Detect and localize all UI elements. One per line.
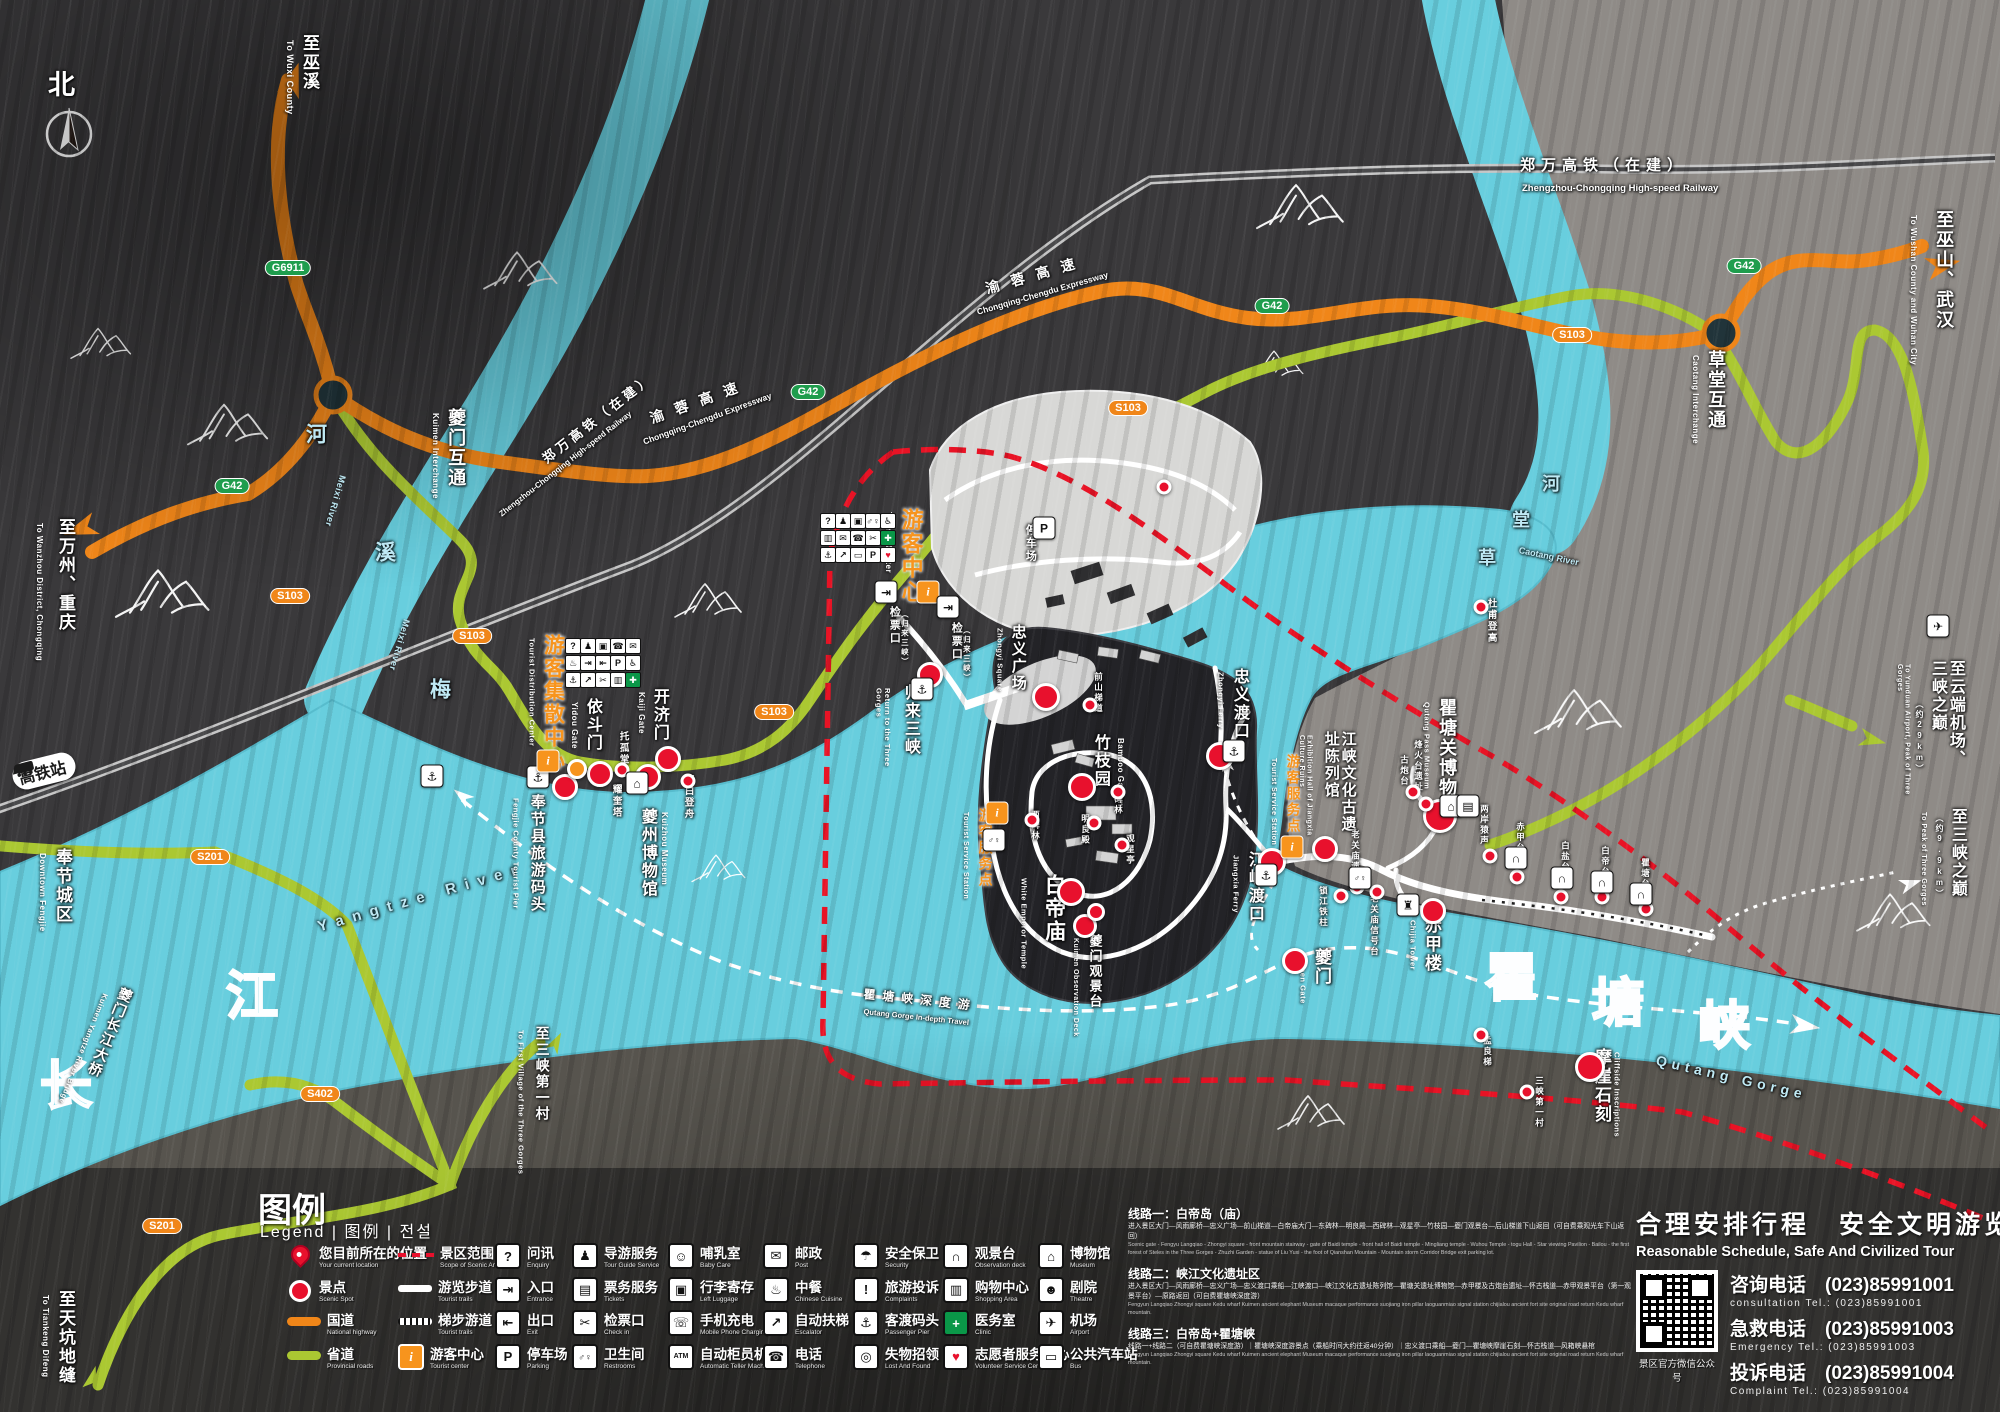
service-icon: ♟ bbox=[580, 638, 596, 654]
scenic-spot bbox=[1474, 1028, 1489, 1043]
service-icon: ▭ bbox=[850, 547, 866, 563]
scenic-spot bbox=[1032, 683, 1060, 711]
zhongyi-ferry-en: Zhongyi Ferry bbox=[1216, 672, 1224, 729]
legend-icon-box: ? bbox=[495, 1243, 521, 1269]
legend-icon-box: ♟ bbox=[572, 1243, 598, 1269]
service-icon: ✚ bbox=[880, 530, 896, 546]
legend-label-en: Provincial roads bbox=[327, 1363, 373, 1370]
legend-label: 客渡码头 bbox=[885, 1309, 939, 1329]
scenic-spot bbox=[1483, 849, 1498, 864]
road-shield-s201: S201 bbox=[190, 849, 230, 865]
ticket-gate-2-sub: （归来三峡） bbox=[962, 626, 970, 683]
legend-label: 邮政 bbox=[795, 1242, 822, 1262]
service-icon: ☎ bbox=[850, 530, 866, 546]
scenic-spot bbox=[1057, 878, 1085, 906]
legend-icon-atm: ATM bbox=[668, 1344, 694, 1370]
yidou-gate-en: Yidou Gate bbox=[569, 702, 578, 749]
road-shield-g42: G42 bbox=[791, 384, 826, 400]
road-shield-s103: S103 bbox=[754, 704, 794, 720]
road-shield-s103: S103 bbox=[452, 628, 492, 644]
dest-first-village-en: To First Village of the Three Gorges bbox=[516, 1030, 524, 1180]
service-icon-grid: ?♟▣☎✉♨⇥⇤P♿⚓↗✂▥✚ bbox=[565, 638, 639, 688]
route-text: Scenic gate - Fengyu Langqiao - Zhongyi … bbox=[1128, 1242, 1633, 1258]
service-icon: ? bbox=[565, 638, 581, 654]
exhibit-icon: ▤ bbox=[1457, 795, 1480, 818]
legend-icon-box: ♨ bbox=[763, 1277, 789, 1303]
info-icon: i bbox=[986, 802, 1009, 825]
service-icon: ▥ bbox=[610, 672, 626, 688]
service-icon: ♿ bbox=[880, 513, 896, 529]
laoguanmiao-signal: 老关庙信号台 bbox=[1369, 894, 1379, 957]
legend-label: 导游服务 bbox=[604, 1242, 659, 1262]
route-description: 线路二：峡江文化遗址区进入景区大门—风雨廊桥—忠义广场—忠义渡口乘船—江峡渡口—… bbox=[1128, 1265, 1633, 1318]
service-icon: ☎ bbox=[610, 638, 626, 654]
legend-icon-box: P bbox=[495, 1344, 521, 1370]
legend-icon-box: ♂♀ bbox=[572, 1344, 598, 1370]
legend-icon-dot bbox=[287, 1277, 313, 1302]
legend-label-en: Parking bbox=[527, 1363, 568, 1370]
scenic-spot bbox=[1510, 870, 1525, 885]
caotang-river-en: Caotang River bbox=[1518, 545, 1580, 568]
legend-label-en: Telephone bbox=[795, 1363, 825, 1370]
legend-icon-pin bbox=[287, 1243, 313, 1264]
qr-caption: 景区官方微信公众号 bbox=[1636, 1356, 1718, 1384]
legend-label-en: Restrooms bbox=[604, 1363, 645, 1370]
phone-number-en: consultation Tel.: (023)85991001 bbox=[1730, 1298, 1954, 1309]
legend-label-en: Automatic Teller Machine bbox=[700, 1363, 773, 1370]
scenic-spot bbox=[655, 746, 681, 772]
phone-number-en: Emergency Tel.: (023)85991003 bbox=[1730, 1342, 1954, 1353]
scenic-spot bbox=[1282, 948, 1308, 974]
pier-icon: ⚓ bbox=[1255, 864, 1278, 887]
apes-both-banks: 两岸猿声 bbox=[1479, 804, 1489, 846]
kuimen-interchange-en: Kuimen Interchange bbox=[430, 413, 439, 499]
service-icon: ⚓ bbox=[820, 547, 836, 563]
legend-label: 医务室 bbox=[975, 1309, 1016, 1329]
scenic-spot bbox=[1406, 785, 1421, 800]
legend-icon-box: ☏ bbox=[668, 1310, 694, 1336]
legend-label: 哺乳室 bbox=[700, 1242, 741, 1262]
caotang-char-1: 草 bbox=[1476, 548, 1496, 568]
kaiji-gate: 开济门 bbox=[650, 688, 668, 742]
phone-number-en: Complaint Tel.: (023)85991004 bbox=[1730, 1386, 1954, 1397]
legend-icon-box: ▭ bbox=[1038, 1344, 1064, 1370]
legend-item-景点: 景点Scenic Spot bbox=[287, 1276, 407, 1303]
dest-wanzhou: 至万州、重庆 bbox=[56, 518, 75, 632]
service-icon: ⇤ bbox=[595, 655, 611, 671]
route-text: 线路一：白帝岛（庙） bbox=[1128, 1205, 1633, 1222]
dest-wuxi: 至巫溪 bbox=[300, 34, 319, 91]
observation-icon: ∩ bbox=[1630, 883, 1653, 906]
kuimen-deck-en: Kuimen Observation Deck bbox=[1071, 938, 1079, 1038]
scenic-spot bbox=[1068, 773, 1096, 801]
service-icon: ✉ bbox=[835, 530, 851, 546]
legend-label-en: Mobile Phone Charging bbox=[700, 1329, 768, 1336]
legend-icon-box: ! bbox=[853, 1277, 879, 1303]
compass-north-label: 北 bbox=[48, 70, 75, 100]
info-title-en: Reasonable Schedule, Safe And Civilized … bbox=[1636, 1244, 1984, 1260]
downtown-fengjie: 奉节城区 bbox=[53, 848, 72, 924]
kuimen-interchange: 夔门互通 bbox=[446, 408, 466, 488]
legend-icon-box: ⇥ bbox=[495, 1277, 521, 1303]
service-station-east-en: Tourist Service Station bbox=[1269, 758, 1277, 858]
scenic-spot bbox=[1474, 600, 1489, 615]
legend-icon-trail bbox=[398, 1277, 432, 1292]
scenic-spot bbox=[1575, 1052, 1605, 1082]
legend-icon-box: ☂ bbox=[853, 1243, 879, 1269]
legend-label: 游客中心 bbox=[430, 1343, 484, 1363]
legend-item-省道: 省道Provincial roads bbox=[287, 1343, 407, 1370]
legend-label-en: Tour Guide Service bbox=[604, 1262, 659, 1269]
service-icon: ↗ bbox=[580, 672, 596, 688]
service-icon: P bbox=[865, 547, 881, 563]
suojiang-pillar: 锁江铁柱 bbox=[1318, 886, 1328, 928]
legend-label: 观景台 bbox=[975, 1242, 1026, 1262]
dest-yunduan-dist: （约29km） bbox=[1914, 700, 1923, 774]
road-shield-s402: S402 bbox=[300, 1086, 340, 1102]
dest-peak-en: To Peak of Three Gorges bbox=[1919, 812, 1927, 942]
yangtze-en: Yangtze River bbox=[316, 861, 528, 937]
white-emperor-temple-en: White Emperor Temple bbox=[1019, 878, 1027, 983]
observation-icon: ∩ bbox=[1551, 867, 1574, 890]
legend-icon-box: ↗ bbox=[763, 1310, 789, 1336]
route-text: 线路二：峡江文化遗址区 bbox=[1128, 1265, 1633, 1282]
legend-label: 失物招领 bbox=[885, 1343, 939, 1363]
legend-label-en: Tourist trails bbox=[438, 1329, 492, 1336]
gate-icon: ⇥ bbox=[875, 581, 898, 604]
legend-label: 入口 bbox=[527, 1276, 554, 1296]
downtown-fengjie-en: Downtown Fengjie bbox=[37, 853, 46, 932]
route-description: 线路一：白帝岛（庙）进入景区大门—风雨廊桥—忠义广场—前山梯道—白帝庙大门—东碑… bbox=[1128, 1205, 1633, 1258]
legend-label: 自动柜员机 bbox=[700, 1343, 773, 1363]
kuimen-deck: 夔门观景台 bbox=[1087, 934, 1102, 1009]
first-village: 三峡第一村 bbox=[1534, 1076, 1544, 1129]
road-shield-s103: S103 bbox=[1552, 327, 1592, 343]
scenic-spot bbox=[1312, 836, 1338, 862]
yaokui-pagoda: 耀奎塔 bbox=[610, 784, 621, 819]
scenic-area-map: { "colors":{ "river":"#68ceде-fix", "wat… bbox=[0, 0, 2000, 1412]
legend-label: 检票口 bbox=[604, 1309, 645, 1329]
info-icon: i bbox=[1281, 836, 1304, 859]
legend-icon-box: ✉ bbox=[763, 1243, 789, 1269]
legend-label: 博物馆 bbox=[1070, 1242, 1111, 1262]
ticket-gate-2: 检票口 bbox=[950, 622, 962, 661]
ticket-gate-1-sub: （归来三峡） bbox=[900, 610, 908, 667]
scenic-spot bbox=[1554, 890, 1569, 905]
scenic-spot bbox=[1520, 1085, 1535, 1100]
service-icon: ? bbox=[820, 513, 836, 529]
phone-number: 咨询电话 (023)85991001 bbox=[1730, 1270, 1954, 1297]
kuimen-gate-label: 夔门 bbox=[1312, 948, 1331, 986]
meixi-char-2: 溪 bbox=[372, 541, 396, 564]
museum-icon: ⌂ bbox=[626, 772, 649, 795]
dest-tiankeng: 至天坑地缝 bbox=[56, 1290, 75, 1385]
scenic-spot bbox=[1370, 885, 1385, 900]
meixi-char-1: 河 bbox=[303, 423, 327, 446]
route-descriptions: 线路一：白帝岛（庙）进入景区大门—风雨廊桥—忠义广场—前山梯道—白帝庙大门—东碑… bbox=[1128, 1205, 1633, 1375]
observation-icon: ∩ bbox=[1591, 871, 1614, 894]
route-text: 进入景区大门—风雨廊桥—忠义广场—忠义渡口乘船—江峡渡口—峡江文化古遗址陈列馆—… bbox=[1128, 1282, 1633, 1302]
legend-label: 行李寄存 bbox=[700, 1276, 754, 1296]
contact-info-panel: 合理安排行程 安全文明游览 Reasonable Schedule, Safe … bbox=[1636, 1205, 1984, 1402]
route-text: 进入景区大门—风雨廊桥—忠义广场—前山梯道—白帝庙大门—东碑林—明良殿—西碑林—… bbox=[1128, 1222, 1633, 1242]
scenic-spot bbox=[1115, 838, 1130, 853]
legend-label-en: Security bbox=[885, 1262, 939, 1269]
observation-icon: ∩ bbox=[1505, 847, 1528, 870]
meixi-en-2: Meixi River bbox=[387, 618, 411, 672]
caotang-interchange: 草堂互通 bbox=[1706, 350, 1726, 430]
service-icon: ✂ bbox=[595, 672, 611, 688]
dest-wushan-wuhan-en: To Wushan County and Wuhan City bbox=[1908, 215, 1917, 375]
legend-label-en: Entrance bbox=[527, 1296, 554, 1303]
legend-label: 自动扶梯 bbox=[795, 1309, 849, 1329]
kaiji-gate-en: Kaiji Gate bbox=[636, 692, 645, 734]
legend-icon-box: ☻ bbox=[1038, 1277, 1064, 1303]
road-shield-s201: S201 bbox=[142, 1218, 182, 1234]
legend-label-en: Tickets bbox=[604, 1296, 658, 1303]
service-icon: ✚ bbox=[625, 672, 641, 688]
route-text: 线路三：白帝岛+瞿塘峡 bbox=[1128, 1325, 1633, 1342]
legend-label: 剧院 bbox=[1070, 1276, 1097, 1296]
legend-label: 国道 bbox=[327, 1309, 377, 1329]
legend-icon-box: ▥ bbox=[943, 1277, 969, 1303]
legend-label-en: Theatre bbox=[1070, 1296, 1097, 1303]
chijia-tower-en: Chijia Tower bbox=[1408, 920, 1416, 970]
dest-tiankeng-en: To Tiankeng Difeng bbox=[40, 1295, 49, 1377]
scenic-spot bbox=[1111, 785, 1126, 800]
service-icon: P bbox=[610, 655, 626, 671]
scenic-spot bbox=[567, 759, 587, 779]
legend-label-en: Post bbox=[795, 1262, 822, 1269]
hsr-label: 郑万高铁（在建） bbox=[1520, 158, 1688, 175]
yidou-gate: 依斗门 bbox=[583, 698, 601, 752]
legend-label: 游览步道 bbox=[438, 1276, 492, 1296]
legend-label: 手机充电 bbox=[700, 1309, 768, 1329]
service-icon: ▣ bbox=[595, 638, 611, 654]
road-shield-s103: S103 bbox=[1108, 400, 1148, 416]
service-icon: ♟ bbox=[835, 513, 851, 529]
scenic-spot bbox=[587, 761, 613, 787]
legend-icon-steps bbox=[398, 1310, 432, 1325]
legend-label: 停车场 bbox=[527, 1343, 568, 1363]
legend-label-en: Escalator bbox=[795, 1329, 849, 1336]
legend-label-en: Lost And Found bbox=[885, 1363, 939, 1370]
cliffside-inscriptions-en: Cliffside Inscriptions bbox=[1612, 1052, 1620, 1162]
ticket-gate-1: 检票口 bbox=[888, 606, 900, 645]
legend-icon-boxr: ♥ bbox=[943, 1344, 969, 1370]
fengjie-pier-en: Fengjie County Tourist Pier bbox=[511, 798, 519, 928]
legend-label: 电话 bbox=[795, 1343, 825, 1363]
return-three-gorges-en: Return to the Three Gorges bbox=[874, 688, 891, 778]
info-title: 合理安排行程 安全文明游览 bbox=[1636, 1205, 1984, 1241]
hsr-label-mid: 郑万高铁（在建） bbox=[540, 371, 656, 466]
legend-label-en: Airport bbox=[1070, 1329, 1097, 1336]
legend-icon-box: ∩ bbox=[943, 1243, 969, 1269]
legend-label: 景点 bbox=[319, 1276, 354, 1296]
service-icon-grid: ?♟▣♂♀♿▥✉☎✂✚⚓↗▭P♥ bbox=[820, 513, 894, 563]
pier-icon: ⚓ bbox=[1223, 740, 1246, 763]
legend-icon-boxg: + bbox=[943, 1310, 969, 1336]
qutang-gorge-en: Qutang Gorge bbox=[1654, 1053, 1808, 1103]
legend-label-en: Shopping Area bbox=[975, 1296, 1029, 1303]
legend-label-en: Tourist trails bbox=[438, 1296, 492, 1303]
tuogu-hall: 托孤堂 bbox=[617, 731, 628, 766]
legend-label-en: National highway bbox=[327, 1329, 377, 1336]
ancient-battery: 古炮台 bbox=[1399, 755, 1409, 787]
dest-yunduan-en: To Yunduan Airport, Peak of Three Gorges bbox=[1895, 664, 1911, 804]
route-text: 线路一+线路二（可自费瞿塘峡深度游）｜瞿塘峡深度游景点（乘船时间大约往返40分钟… bbox=[1128, 1342, 1633, 1352]
service-station-island-en: Tourist Service Station bbox=[961, 812, 969, 912]
phone-number: 急救电话 (023)85991003 bbox=[1730, 1314, 1954, 1341]
service-icon: ⇥ bbox=[580, 655, 596, 671]
legend-label-en: Observation deck bbox=[975, 1262, 1026, 1269]
kuizhou-museum-en: Kuizhou Museum bbox=[659, 812, 668, 885]
dest-wanzhou-en: To Wanzhou District, Chongqing bbox=[34, 523, 43, 663]
legend-icon-box: ◎ bbox=[853, 1344, 879, 1370]
jiangxia-ferry-en: Jiangxia Ferry bbox=[1231, 855, 1239, 913]
info-icon: i bbox=[537, 750, 560, 773]
airport-icon: ✈ bbox=[1927, 615, 1950, 638]
scenic-spot bbox=[681, 774, 696, 789]
legend-icon-nroad bbox=[287, 1310, 321, 1326]
legend-label-en: Passenger Pier bbox=[885, 1329, 939, 1336]
caotang-char-3: 河 bbox=[1540, 474, 1560, 494]
scenic-spot bbox=[1157, 480, 1172, 495]
parking-icon: P bbox=[1033, 517, 1056, 540]
legend-label: 安全保卫 bbox=[885, 1242, 939, 1262]
jiangxia-exhibition-hall-en: Exhibition Hall of Jiangxia Culture Ruin… bbox=[1297, 735, 1313, 850]
service-icon: ▥ bbox=[820, 530, 836, 546]
route-text: Fengyun Langqiao Zhongyi square Kedu wha… bbox=[1128, 1352, 1633, 1368]
tower-icon: ♜ bbox=[1397, 894, 1420, 917]
scenic-spot bbox=[1025, 813, 1040, 828]
zhongyi-square-en: Zhongyi Square bbox=[995, 628, 1003, 692]
service-icon: ♂♀ bbox=[865, 513, 881, 529]
legend-item-国道: 国道National highway bbox=[287, 1309, 407, 1336]
legend-label: 中餐 bbox=[795, 1276, 842, 1296]
service-icon: ✉ bbox=[625, 638, 641, 654]
qutang-char-1: 瞿 bbox=[1485, 950, 1537, 1008]
service-icon: ♿ bbox=[625, 655, 641, 671]
hsr-label-mid-en: Zhengzhou-Chongqing High-speed Railway bbox=[498, 410, 634, 519]
road-shield-g42: G42 bbox=[1255, 298, 1290, 314]
scenic-spot bbox=[1087, 816, 1102, 831]
service-icon: ♨ bbox=[565, 655, 581, 671]
legend-icon-box: ✈ bbox=[1038, 1310, 1064, 1336]
route-text: Fengyun Langqiao Zhongyi square Kedu wha… bbox=[1128, 1302, 1633, 1318]
legend-label-en: Enquiry bbox=[527, 1262, 554, 1269]
scenic-spot bbox=[1083, 698, 1098, 713]
wechat-qr-code bbox=[1636, 1270, 1718, 1352]
qutang-char-3: 峡 bbox=[1698, 998, 1750, 1056]
legend-label-en: Chinese Cuisine bbox=[795, 1296, 842, 1303]
qutang-char-2: 塘 bbox=[1592, 975, 1644, 1033]
legend-label: 旅游投诉 bbox=[885, 1276, 939, 1296]
legend-label-en: Baby Care bbox=[700, 1262, 741, 1269]
caotang-interchange-en: Caotang Interchange bbox=[1690, 355, 1699, 444]
legend-label: 机场 bbox=[1070, 1309, 1097, 1329]
legend-label-en: Exit bbox=[527, 1329, 554, 1336]
scenic-spot bbox=[1334, 889, 1349, 904]
road-shield-g42: G42 bbox=[1727, 258, 1762, 274]
legend-subtitle: Legend | 图例 | 전설 bbox=[260, 1218, 433, 1242]
legend-label-en: Scenic Spot bbox=[319, 1296, 354, 1303]
zhongyi-square: 忠义广场 bbox=[1009, 624, 1026, 692]
service-icon: ▣ bbox=[850, 513, 866, 529]
scenic-spot bbox=[1419, 797, 1434, 812]
legend-icon-box: ⌂ bbox=[1038, 1243, 1064, 1269]
legend-label: 购物中心 bbox=[975, 1276, 1029, 1296]
caotang-char-2: 堂 bbox=[1510, 510, 1530, 530]
pier-icon: ⚓ bbox=[421, 765, 444, 788]
legend-icon-box: ▣ bbox=[668, 1277, 694, 1303]
legend-icon-box: ☎ bbox=[763, 1344, 789, 1370]
legend-icon-box: ⚓ bbox=[853, 1310, 879, 1336]
legend-icon-box: ☺ bbox=[668, 1243, 694, 1269]
legend-label: 票务服务 bbox=[604, 1276, 658, 1296]
legend-label-en: Complaints bbox=[885, 1296, 939, 1303]
legend-icon-dash bbox=[398, 1243, 434, 1257]
service-icon: ♥ bbox=[880, 547, 896, 563]
legend-icon-box: ⇤ bbox=[495, 1310, 521, 1336]
restroom-icon: ♂♀ bbox=[1349, 867, 1372, 890]
kuizhou-museum: 夔州博物馆 bbox=[638, 808, 656, 898]
legend-label: 卫生间 bbox=[604, 1343, 645, 1363]
legend-label: 省道 bbox=[327, 1343, 373, 1363]
legend-label-en: Left Luggage bbox=[700, 1296, 754, 1303]
tourist-distribution-center-en: Tourist Distribution Center bbox=[527, 638, 535, 773]
legend-label: 出口 bbox=[527, 1309, 554, 1329]
gate-icon: ⇥ bbox=[937, 596, 960, 619]
pier-icon: ⚓ bbox=[911, 678, 934, 701]
dest-peak-dist: （约9.9km） bbox=[1934, 814, 1943, 899]
road-shield-s103: S103 bbox=[270, 588, 310, 604]
legend-icon-proad bbox=[287, 1344, 321, 1360]
dest-peak: 至三峡之巅 bbox=[1948, 808, 1966, 898]
phone-number: 投诉电话 (023)85991004 bbox=[1730, 1358, 1954, 1385]
dest-wushan-wuhan: 至巫山、武汉 bbox=[1934, 210, 1954, 330]
legend-label-en: Museum bbox=[1070, 1262, 1111, 1269]
legend-icon-box: ▤ bbox=[572, 1277, 598, 1303]
road-shield-g42: G42 bbox=[215, 478, 250, 494]
chijia-tower: 赤甲楼 bbox=[1422, 916, 1441, 973]
jiangxia-exhibition-hall: 江峡文化古遗址陈列馆 bbox=[1322, 731, 1356, 839]
dest-first-village: 至三峡第一村 bbox=[534, 1026, 550, 1122]
service-icon: ⚓ bbox=[565, 672, 581, 688]
meixi-char-3: 梅 bbox=[427, 678, 451, 701]
dest-wuxi-en: To Wuxi County bbox=[285, 40, 295, 115]
legend-icon-info: i bbox=[398, 1344, 424, 1370]
service-icon: ✂ bbox=[865, 530, 881, 546]
legend-label: 梯步游道 bbox=[438, 1309, 492, 1329]
legend-label: 景区范围 bbox=[440, 1242, 502, 1262]
legend-item-您目前所在的位置: 您目前所在的位置Your current location bbox=[287, 1242, 407, 1269]
legend-label-en: Tourist center bbox=[430, 1363, 484, 1370]
legend-label-en: Scope of Scenic Area bbox=[440, 1262, 502, 1269]
road-shield-g6911: G6911 bbox=[265, 260, 311, 276]
service-icon: ↗ bbox=[835, 547, 851, 563]
scenic-spot bbox=[1087, 903, 1105, 921]
restroom-icon: ♂♀ bbox=[983, 829, 1006, 852]
legend-label-en: Check in bbox=[604, 1329, 645, 1336]
hsr-label-en: Zhengzhou-Chongqing High-speed Railway bbox=[1522, 184, 1718, 195]
route-description: 线路三：白帝岛+瞿塘峡线路一+线路二（可自费瞿塘峡深度游）｜瞿塘峡深度游景点（乘… bbox=[1128, 1325, 1633, 1368]
legend-icon-box: ✂ bbox=[572, 1310, 598, 1336]
phone-list: 咨询电话 (023)85991001consultation Tel.: (02… bbox=[1730, 1270, 1954, 1402]
legend-label: 问讯 bbox=[527, 1242, 554, 1262]
meixi-en-1: Meixi River bbox=[323, 474, 347, 528]
fengjie-pier: 奉节县旅游码头 bbox=[528, 794, 545, 913]
